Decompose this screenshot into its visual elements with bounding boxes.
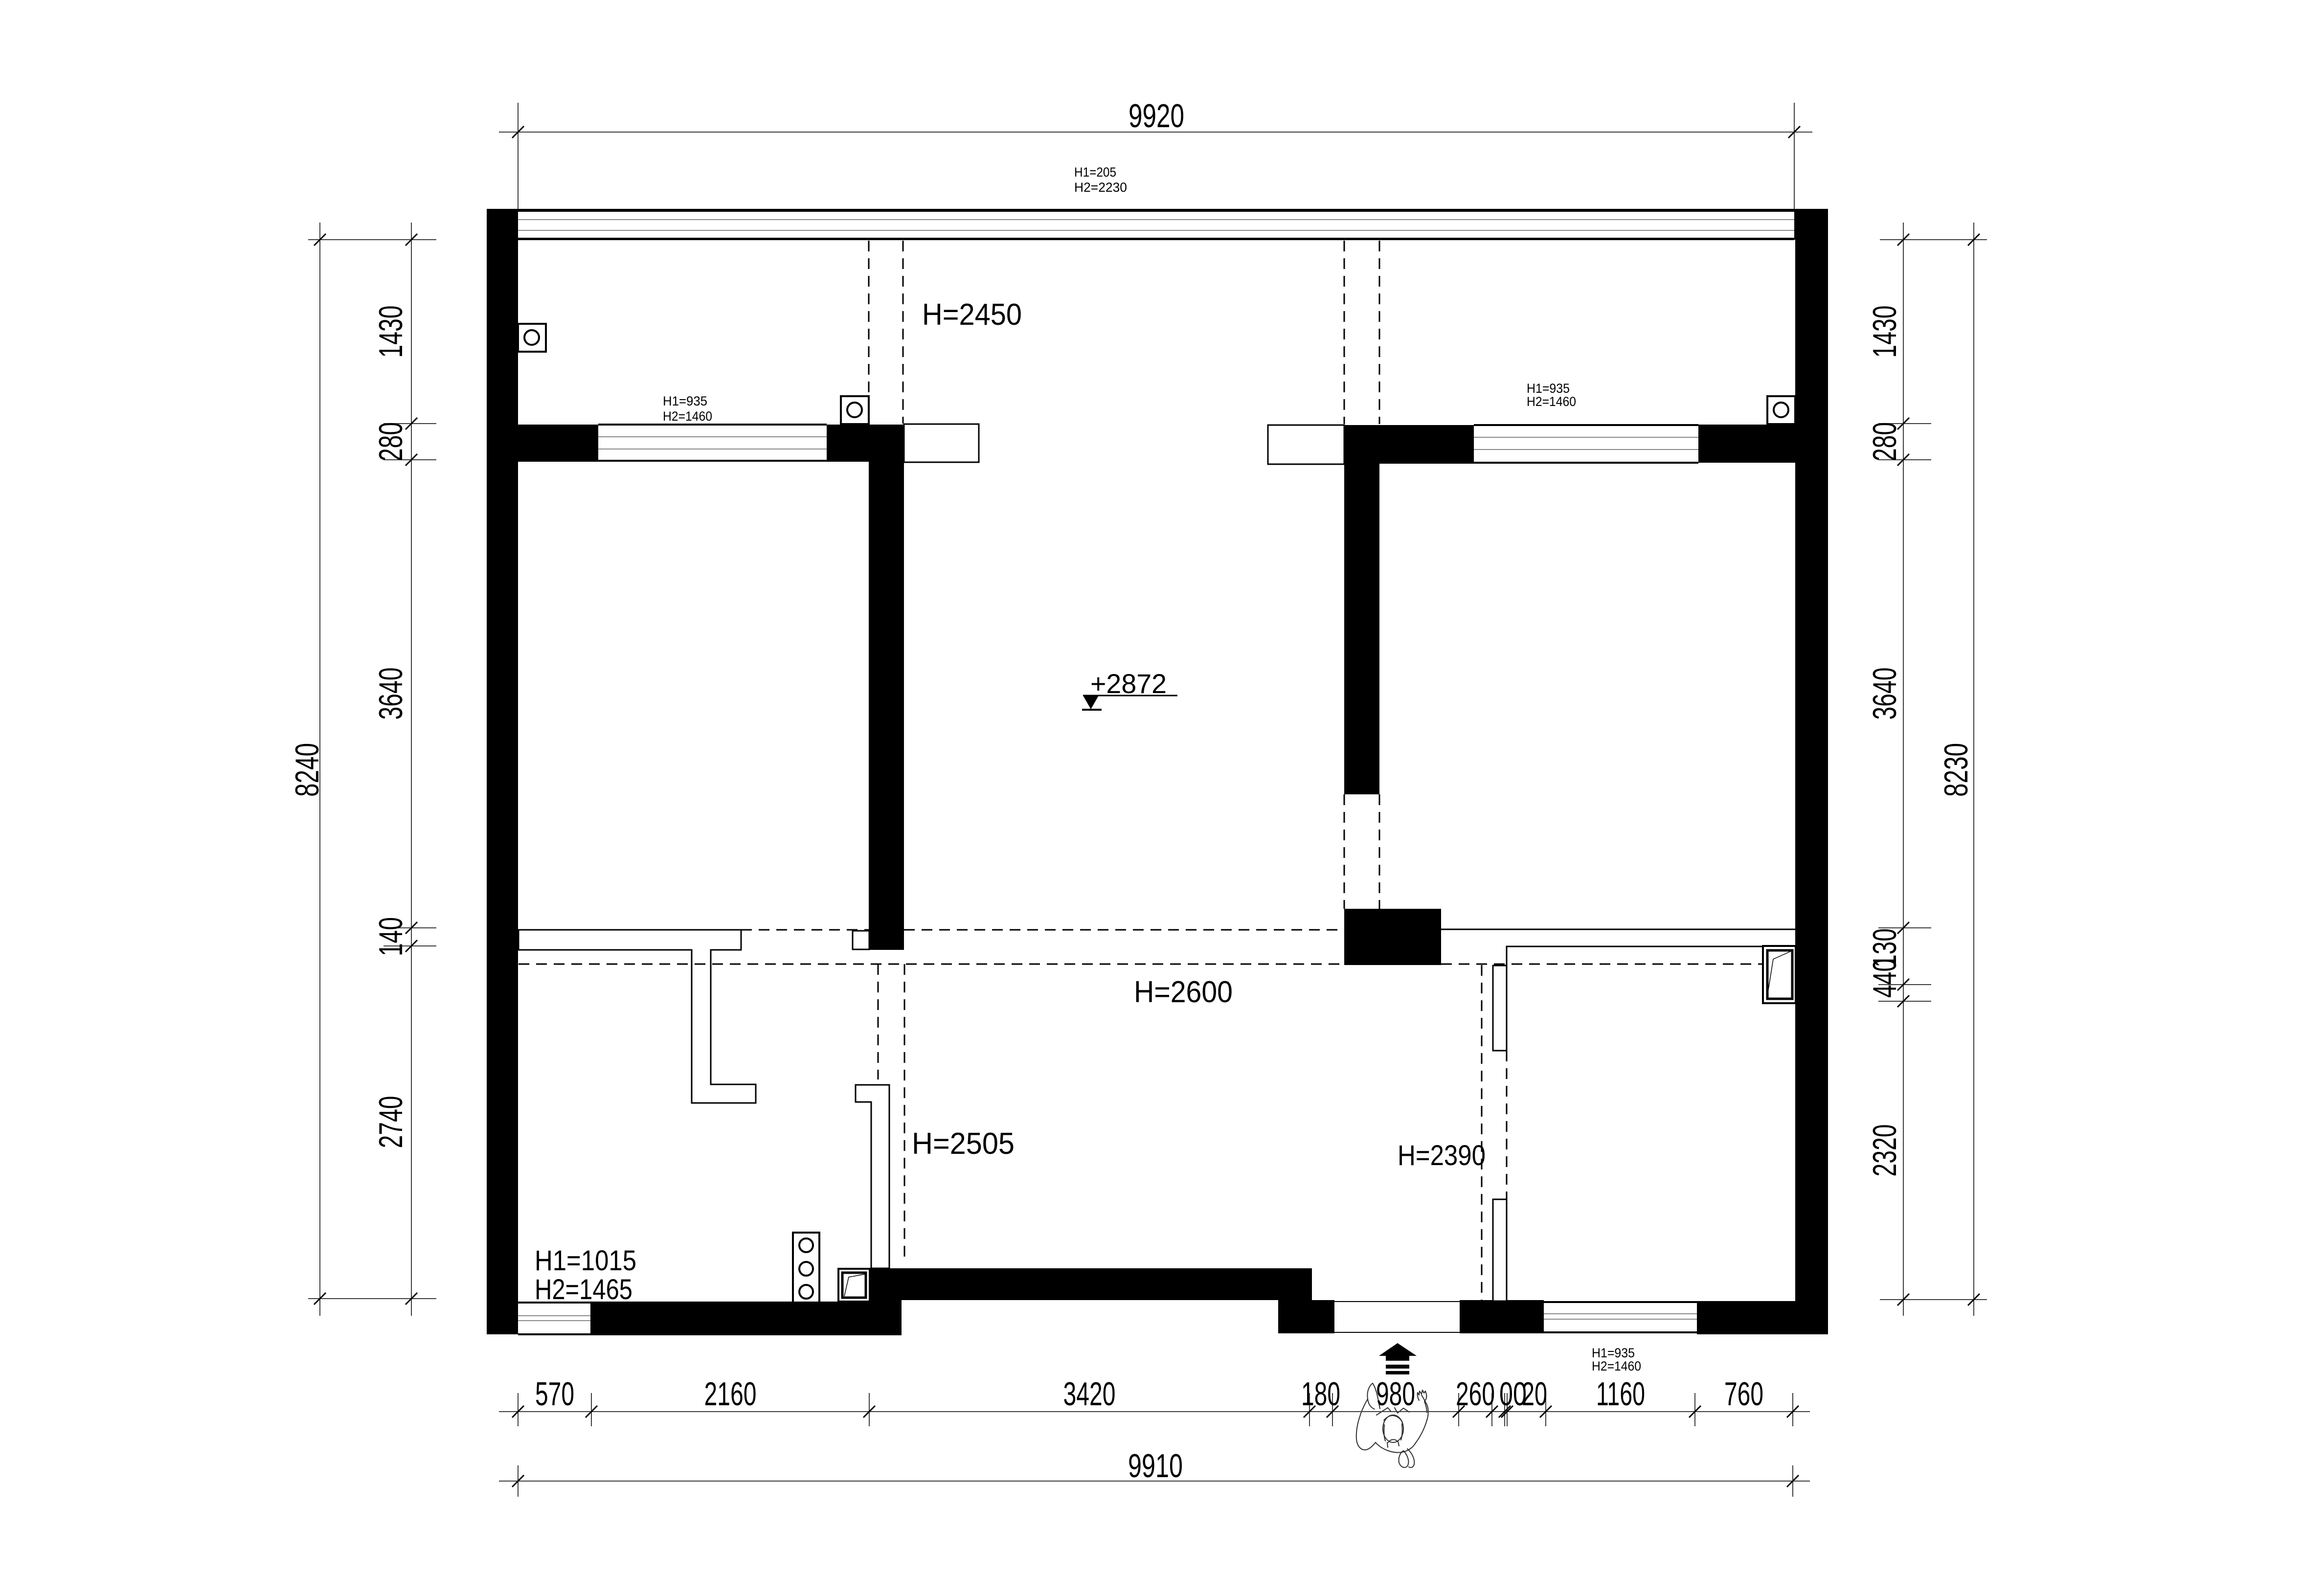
svg-text:H2=2230: H2=2230 [1074, 180, 1127, 195]
svg-text:2740: 2740 [372, 1096, 409, 1148]
svg-text:H2=1460: H2=1460 [663, 409, 712, 424]
svg-text:570: 570 [535, 1375, 574, 1413]
svg-text:H2=1460: H2=1460 [1527, 394, 1576, 409]
svg-text:2160: 2160 [704, 1375, 757, 1413]
svg-text:140: 140 [372, 917, 409, 956]
svg-text:9910: 9910 [1128, 1447, 1183, 1484]
svg-text:280: 280 [372, 422, 409, 461]
svg-text:8230: 8230 [1938, 743, 1975, 797]
svg-text:9920: 9920 [1128, 97, 1184, 135]
svg-text:H1=205: H1=205 [1074, 165, 1116, 180]
svg-text:H=2390: H=2390 [1398, 1140, 1486, 1171]
svg-text:2320: 2320 [1866, 1124, 1903, 1177]
svg-text:130: 130 [1866, 928, 1903, 967]
svg-text:760: 760 [1724, 1375, 1763, 1413]
svg-text:20: 20 [1522, 1375, 1547, 1413]
svg-text:180: 180 [1301, 1375, 1340, 1413]
svg-text:3640: 3640 [372, 668, 409, 720]
svg-text:8240: 8240 [289, 743, 326, 797]
svg-text:1430: 1430 [372, 306, 409, 358]
svg-text:H2=1465: H2=1465 [535, 1274, 632, 1305]
svg-text:1160: 1160 [1596, 1375, 1645, 1413]
svg-text:H1=935: H1=935 [1592, 1346, 1635, 1360]
svg-text:260: 260 [1456, 1375, 1495, 1413]
svg-text:H=2600: H=2600 [1134, 975, 1233, 1009]
svg-text:3640: 3640 [1866, 668, 1903, 720]
svg-text:1430: 1430 [1866, 306, 1903, 358]
svg-text:H=2450: H=2450 [922, 298, 1022, 332]
svg-text:3420: 3420 [1063, 1375, 1116, 1413]
svg-text:+2872: +2872 [1090, 668, 1167, 699]
svg-text:H1=935: H1=935 [663, 394, 707, 408]
svg-text:H1=1015: H1=1015 [535, 1245, 636, 1277]
svg-text:H2=1460: H2=1460 [1592, 1359, 1641, 1373]
svg-text:H1=935: H1=935 [1527, 381, 1570, 396]
svg-text:H=2505: H=2505 [912, 1127, 1015, 1161]
svg-text:280: 280 [1866, 422, 1903, 461]
svg-text:980: 980 [1376, 1375, 1415, 1413]
